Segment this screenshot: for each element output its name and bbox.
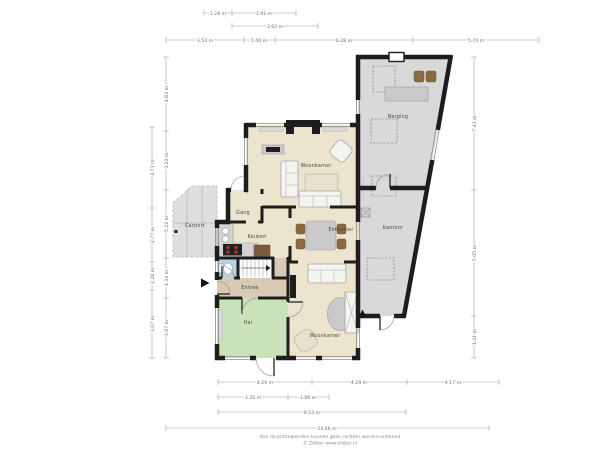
tv-sideboard <box>262 145 284 154</box>
dimension-label: 4.29 m <box>351 380 368 386</box>
dimension-label: 3.07 m <box>150 315 156 332</box>
cooktop <box>223 244 242 256</box>
dimension-label: 3.07 m <box>164 319 170 336</box>
workbench <box>385 87 428 101</box>
sink <box>222 236 228 242</box>
room-label-woonkamer-bottom: Woonkamer <box>310 333 341 339</box>
radiator <box>219 310 223 340</box>
entrance-arrow-front-icon <box>201 279 210 288</box>
dimension-label: 4.71 m <box>150 159 156 176</box>
dimension-label: 6.28 m <box>336 38 353 44</box>
toilet-fixture <box>219 263 233 274</box>
room-label-berging: Berging <box>388 114 408 120</box>
room-label-gang: Gang <box>236 210 250 216</box>
room-label-eetkamer: Eetkamer <box>328 227 353 233</box>
dimension-label: 1.88 m <box>300 395 317 401</box>
carport-post <box>175 230 178 233</box>
dimension-label: 2.28 m <box>150 267 156 284</box>
dimension-label: 4.29 m <box>257 380 274 386</box>
dimension-label: 5.74 m <box>468 38 485 44</box>
footer: Aan de plattegronden kunnen geen rechten… <box>260 434 401 447</box>
room-label-kantoor: Kantoor <box>383 225 404 231</box>
tv-wall <box>290 275 296 298</box>
dimension-label: 3.92 m <box>267 24 284 30</box>
dimension-label: 14.66 m <box>317 426 337 432</box>
ventilation-unit <box>361 208 370 217</box>
sofa-bottom <box>299 191 341 207</box>
room-label-woonkamer-top: Woonkamer <box>301 163 332 169</box>
dimension-label: 5.05 m <box>472 244 478 261</box>
chimney <box>389 53 404 62</box>
dimension-label: 7.43 m <box>472 115 478 132</box>
floor-hal <box>217 298 288 358</box>
floorplan-drawing: 1.28 m 2.91 m 3.92 m 3.53 m 1.40 m 6.28 … <box>0 0 600 450</box>
dimension-label: 4.83 m <box>164 85 170 102</box>
dimension-label: 4.17 m <box>445 380 462 386</box>
sink <box>222 228 228 234</box>
dimension-label: 3.22 m <box>164 152 170 169</box>
dimension-label: 8.53 m <box>304 410 321 416</box>
dimension-label: 1.28 m <box>210 11 227 17</box>
stool <box>426 71 436 82</box>
dimension-label: 1.40 m <box>251 38 268 44</box>
dining-table <box>306 221 336 250</box>
sofa-lounge <box>308 264 346 283</box>
dimension-label: 2.77 m <box>150 226 156 243</box>
sofa-left <box>281 161 298 197</box>
dimension-label: 1.41 m <box>472 328 478 345</box>
room-label-entree: Entree <box>241 285 258 291</box>
dimension-label: 3.53 m <box>197 38 214 44</box>
room-label-keuken: Keuken <box>248 234 267 240</box>
room-label-hal: Hal <box>244 320 253 326</box>
dimension-label: 2.91 m <box>256 11 273 17</box>
dimension-label: 1.34 m <box>164 269 170 286</box>
radiator <box>323 128 347 132</box>
floorplan-page: 1.28 m 2.91 m 3.92 m 3.53 m 1.40 m 6.28 … <box>0 0 600 450</box>
kitchen-cabinet <box>254 245 270 257</box>
footer-copyright: © Zibber www.zibber.nl <box>303 440 357 447</box>
footer-disclaimer: Aan de plattegronden kunnen geen rechten… <box>260 434 401 440</box>
dimension-label: 5.22 m <box>164 215 170 232</box>
room-label-carport: Carport <box>185 223 205 229</box>
stool <box>414 71 424 82</box>
radiator <box>259 128 283 132</box>
dimension-label: 3.20 m <box>245 395 262 401</box>
carport-area <box>173 186 217 257</box>
